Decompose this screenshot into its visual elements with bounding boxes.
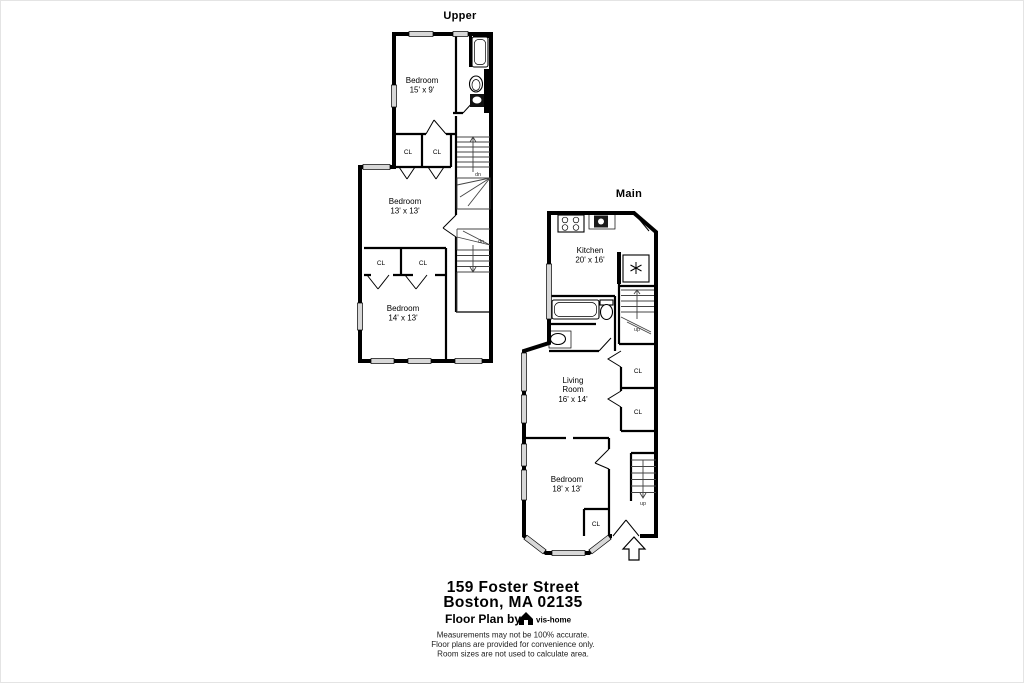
main-plan: Main (522, 188, 657, 560)
living-room-label-2: Room (562, 385, 584, 394)
kitchen-dims: 20' x 16' (575, 256, 605, 265)
upper-closet3-label: CL (377, 260, 386, 267)
closet-bifold-doors (608, 351, 621, 407)
main-bedroom-label: Bedroom (551, 475, 584, 484)
credit-text: Floor Plan by (445, 612, 521, 626)
brand-name: vis-home (536, 616, 572, 625)
toilet-icon (470, 76, 483, 92)
main-plan-title: Main (616, 188, 642, 200)
kitchen-fixtures (558, 214, 649, 282)
kitchen-rear-door-header (634, 213, 656, 232)
floor-plan-page: Upper (0, 0, 1024, 683)
upper-staircase: dn dn (457, 137, 490, 312)
upper-bedroom1-dims: 15' x 9' (410, 86, 435, 95)
main-stair-label-1: up (634, 327, 640, 333)
footer: 159 Foster Street Boston, MA 02135 Floor… (431, 579, 595, 659)
brand-logo: vis-home (519, 612, 572, 625)
main-bedroom-dims: 18' x 13' (552, 485, 582, 494)
main-closet1-label: CL (634, 368, 643, 375)
upper-closet4-label: CL (419, 260, 428, 267)
disclaimer-line3: Room sizes are not used to calculate are… (437, 650, 589, 659)
upper-bedroom1-label: Bedroom (406, 76, 439, 85)
main-stair-label-2: up (640, 501, 646, 507)
main-staircase-up: up (621, 290, 654, 334)
disclaimer-line2: Floor plans are provided for convenience… (431, 640, 595, 649)
main-closet3-label: CL (592, 521, 601, 528)
upper-stair-label-1: dn (475, 172, 481, 178)
upper-plan: Upper (358, 10, 492, 364)
floor-plan-canvas: Upper (1, 1, 1024, 683)
upper-stair-label-2: dn (478, 239, 484, 245)
main-wall-accents (617, 252, 621, 284)
upper-closet1-label: CL (404, 149, 413, 156)
entry-arrow-icon (623, 537, 645, 560)
living-room-dims: 16' x 14' (558, 395, 588, 404)
upper-bedroom2-dims: 13' x 13' (390, 207, 420, 216)
upper-bedroom3-dims: 14' x 13' (388, 314, 418, 323)
living-room-label-1: Living (563, 376, 584, 385)
stove-icon (558, 215, 584, 232)
main-closet2-label: CL (634, 409, 643, 416)
upper-plan-title: Upper (443, 10, 477, 22)
sink-icon (551, 334, 566, 345)
disclaimer-line1: Measurements may not be 100% accurate. (437, 631, 590, 640)
upper-bedroom2-label: Bedroom (389, 197, 422, 206)
upper-bedroom3-label: Bedroom (387, 304, 420, 313)
address-line2: Boston, MA 02135 (443, 594, 582, 611)
upper-closet2-label: CL (433, 149, 442, 156)
kitchen-label: Kitchen (577, 246, 604, 255)
entry-staircase-up: up (631, 460, 656, 507)
